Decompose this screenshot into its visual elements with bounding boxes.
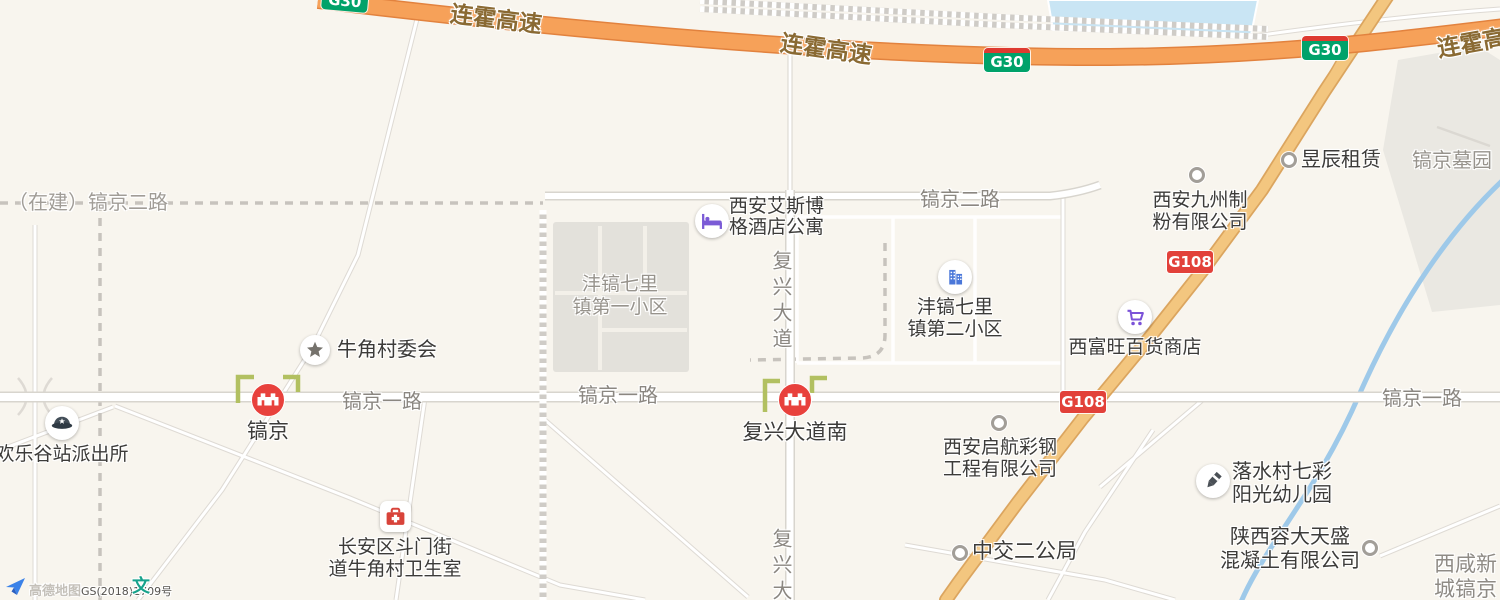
amap-brand-label: 高德地图 (29, 580, 81, 599)
metro-station-marker-haojing[interactable] (250, 382, 286, 418)
kindergarten-poi-marker[interactable] (1196, 464, 1230, 498)
minor-roads-fill (0, 9, 1500, 600)
g108-road (946, 0, 1389, 600)
clinic-poi-label[interactable]: 长安区斗门街 道牛角村卫生室 (328, 536, 461, 580)
map-viewport[interactable]: G30 G30 G30 G108 G108 连霍高速 连霍高速 连霍高速 （在建… (0, 0, 1500, 600)
metro-station-label-haojing[interactable]: 镐京 (247, 421, 289, 442)
metro-logo-icon (777, 382, 813, 418)
rental-poi-label[interactable]: 昱辰租赁 (1301, 149, 1381, 170)
steel-company-poi-dot[interactable] (991, 415, 1007, 431)
police-poi-marker[interactable] (45, 406, 79, 440)
store-poi-label[interactable]: 西富旺百货商店 (1068, 337, 1201, 358)
building-icon (940, 262, 970, 292)
g30-badge-right: G30 (1302, 36, 1348, 60)
g108-badge-lower: G108 (1060, 391, 1106, 413)
village-committee-poi-marker[interactable] (300, 335, 330, 365)
community2-poi-marker[interactable] (938, 260, 972, 294)
shopping-cart-icon (1120, 302, 1150, 332)
flour-company-poi-dot[interactable] (1189, 167, 1205, 183)
community2-poi-label[interactable]: 沣镐七里 镇第二小区 (907, 296, 1002, 340)
rental-poi-dot[interactable] (1281, 152, 1297, 168)
store-poi-marker[interactable] (1118, 300, 1152, 334)
hotel-poi-label[interactable]: 西安艾斯博 格酒店公寓 (729, 196, 824, 238)
road-label-under-construction: （在建）镐京二路 (8, 192, 168, 213)
metro-logo-icon (250, 382, 286, 418)
medical-kit-icon (381, 502, 410, 531)
minor-roads-casing (0, 9, 1500, 600)
hotel-poi-marker[interactable] (695, 204, 729, 238)
district-area-label[interactable]: 西咸新 城镐京 (1434, 552, 1497, 600)
map-canvas (0, 0, 1500, 600)
cemetery-area-label[interactable]: 镐京墓园 (1412, 150, 1492, 171)
amap-logo-icon[interactable] (4, 574, 26, 596)
police-poi-label[interactable]: 欢乐谷站派出所 (0, 444, 129, 465)
metro-station-marker-fuxingdadaonan[interactable] (777, 382, 813, 418)
main-roads (0, 55, 1500, 600)
road-label-haojing-1st: 镐京一路 (1382, 388, 1462, 409)
flour-company-poi-label[interactable]: 西安九州制 粉有限公司 (1152, 189, 1247, 233)
community1-area-label[interactable]: 沣镐七里 镇第一小区 (572, 273, 667, 319)
star-icon (302, 337, 328, 363)
road-label-fuxing-avenue: 复兴大道 (770, 250, 791, 354)
village-committee-poi-label[interactable]: 牛角村委会 (337, 339, 437, 360)
kindergarten-poi-label[interactable]: 落水村七彩 阳光幼儿园 (1232, 460, 1332, 506)
cccc-bureau-poi-dot[interactable] (952, 545, 968, 561)
concrete-company-poi-dot[interactable] (1362, 540, 1378, 556)
road-label-haojing-1st: 镐京一路 (578, 385, 658, 406)
metro-station-label-fuxingdadaonan[interactable]: 复兴大道南 (743, 422, 848, 443)
steel-company-poi-label[interactable]: 西安启航彩钢 工程有限公司 (943, 436, 1057, 480)
road-label-haojing-1st: 镐京一路 (342, 391, 422, 412)
g30-badge-center: G30 (984, 48, 1030, 72)
cccc-bureau-poi-label[interactable]: 中交二公局 (972, 541, 1077, 562)
concrete-company-poi-label[interactable]: 陕西容大天盛 混凝土有限公司 (1220, 524, 1360, 572)
g108-badge-upper: G108 (1167, 251, 1213, 273)
clinic-poi-marker[interactable] (380, 501, 411, 532)
police-hat-icon (46, 407, 78, 439)
cemetery-area (1383, 46, 1500, 312)
culture-poi-icon[interactable]: 文 (132, 572, 150, 598)
road-label-fuxing-avenue: 复兴大道 (770, 528, 791, 600)
map-license-label: GS(2018)1709号 (81, 583, 172, 599)
bed-icon (697, 206, 727, 236)
road-label-haojing-2nd: 镐京二路 (920, 189, 1000, 210)
pencil-icon (1198, 466, 1228, 496)
